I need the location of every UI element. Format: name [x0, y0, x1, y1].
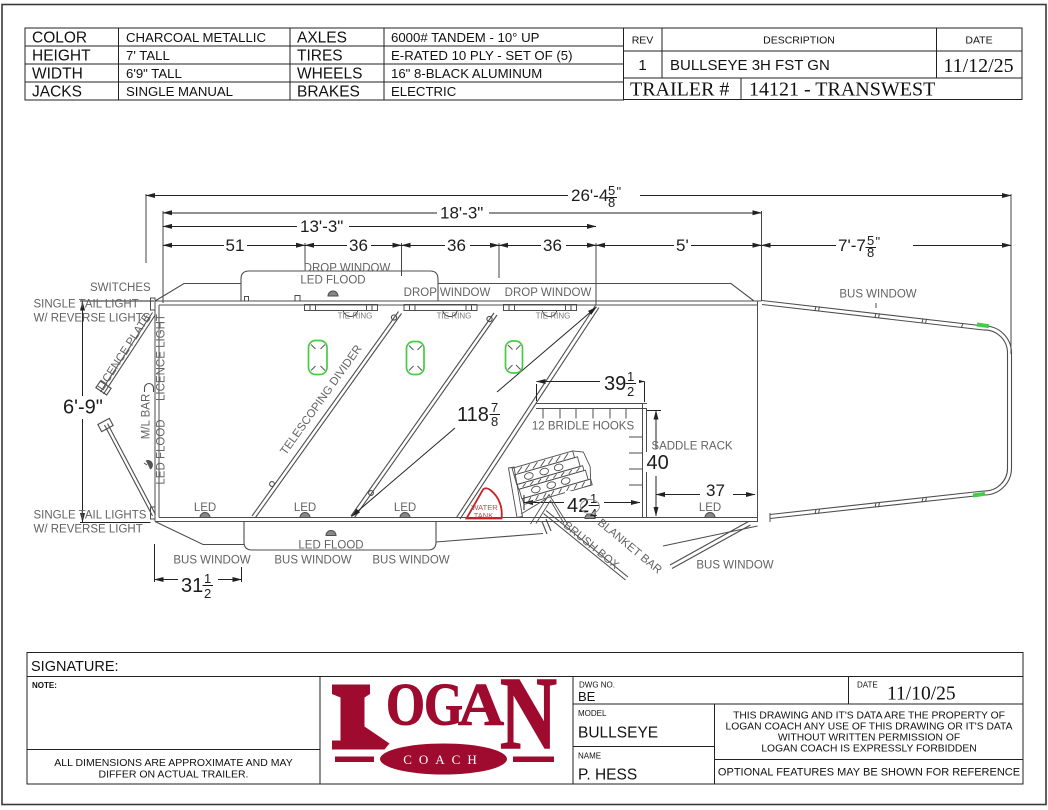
svg-text:HEIGHT: HEIGHT	[32, 48, 91, 65]
svg-text:TIE RING: TIE RING	[536, 312, 571, 321]
svg-text:5': 5'	[676, 236, 689, 255]
svg-text:N: N	[500, 656, 557, 771]
svg-text:NOTE:: NOTE:	[32, 681, 57, 690]
svg-text:": "	[617, 184, 622, 199]
svg-text:BUS WINDOW: BUS WINDOW	[274, 555, 351, 567]
svg-text:31: 31	[181, 575, 203, 597]
svg-text:LED: LED	[194, 502, 216, 514]
svg-text:COACH: COACH	[403, 752, 484, 767]
svg-text:JACKS: JACKS	[32, 84, 82, 101]
svg-text:LED FLOOD: LED FLOOD	[156, 419, 168, 484]
svg-text:36: 36	[349, 236, 368, 255]
svg-text:TIE RING: TIE RING	[437, 312, 472, 321]
svg-text:WITHOUT WRITTEN PERMISSION OF: WITHOUT WRITTEN PERMISSION OF	[778, 733, 960, 744]
svg-text:BULLSEYE 3H FST GN: BULLSEYE 3H FST GN	[670, 57, 830, 74]
svg-text:AXLES: AXLES	[297, 30, 347, 47]
svg-text:DATE: DATE	[857, 681, 878, 690]
svg-text:DROP WINDOW: DROP WINDOW	[304, 263, 391, 275]
svg-text:SWITCHES: SWITCHES	[90, 282, 151, 294]
svg-text:TIE RING: TIE RING	[338, 312, 373, 321]
svg-text:LED FLOOD: LED FLOOD	[298, 540, 363, 552]
svg-text:M/L BAR: M/L BAR	[141, 394, 153, 440]
svg-text:ELECTRIC: ELECTRIC	[391, 84, 457, 99]
svg-text:LED: LED	[294, 502, 316, 514]
svg-text:SINGLE TAIL LIGHTS: SINGLE TAIL LIGHTS	[34, 510, 147, 522]
svg-text:39: 39	[604, 373, 626, 395]
svg-text:2: 2	[204, 586, 211, 601]
svg-text:BRAKES: BRAKES	[297, 84, 360, 101]
svg-text:TANK: TANK	[474, 511, 493, 520]
svg-text:SINGLE MANUAL: SINGLE MANUAL	[126, 84, 233, 99]
svg-text:NAME: NAME	[578, 752, 601, 761]
svg-text:BE: BE	[578, 689, 596, 704]
svg-text:REV: REV	[632, 35, 654, 47]
svg-text:P. HESS: P. HESS	[578, 767, 637, 784]
svg-text:LOGAN COACH IS EXPRESSLY FORBI: LOGAN COACH IS EXPRESSLY FORBIDDEN	[761, 744, 976, 755]
svg-text:SINGLE TAIL LIGHT: SINGLE TAIL LIGHT	[34, 299, 139, 311]
svg-text:BUS WINDOW: BUS WINDOW	[696, 560, 773, 572]
svg-text:LOGAN COACH ANY USE OF THIS DR: LOGAN COACH ANY USE OF THIS DRAWING OR I…	[726, 722, 1013, 733]
svg-text:DROP WINDOW: DROP WINDOW	[505, 287, 592, 299]
svg-text:BULLSEYE: BULLSEYE	[578, 725, 658, 742]
svg-text:TIRES: TIRES	[297, 48, 343, 65]
svg-text:COLOR: COLOR	[32, 30, 87, 47]
svg-text:WIDTH: WIDTH	[32, 66, 83, 83]
svg-text:BLANKET BAR: BLANKET BAR	[595, 517, 664, 577]
svg-text:BUS WINDOW: BUS WINDOW	[372, 555, 449, 567]
svg-text:7'-7: 7'-7	[838, 236, 866, 255]
svg-text:26'-4: 26'-4	[571, 186, 608, 205]
svg-text:LICENCE LIGHT: LICENCE LIGHT	[156, 314, 168, 401]
svg-text:DROP WINDOW: DROP WINDOW	[404, 287, 491, 299]
svg-text:": "	[876, 234, 881, 249]
svg-text:1: 1	[627, 369, 634, 384]
svg-text:LED FLOOD: LED FLOOD	[300, 275, 365, 287]
svg-text:DESCRIPTION: DESCRIPTION	[763, 35, 835, 47]
svg-text:TRAILER #: TRAILER #	[630, 79, 729, 101]
svg-text:40: 40	[647, 452, 669, 474]
svg-text:THIS DRAWING AND IT'S DATA ARE: THIS DRAWING AND IT'S DATA ARE THE PROPE…	[733, 711, 1005, 722]
svg-text:ALL DIMENSIONS ARE APPROXIMATE: ALL DIMENSIONS ARE APPROXIMATE AND MAY	[54, 757, 292, 769]
svg-text:CHARCOAL METALLIC: CHARCOAL METALLIC	[126, 30, 266, 45]
svg-text:118: 118	[457, 404, 489, 426]
svg-text:18'-3": 18'-3"	[440, 204, 483, 223]
svg-text:W/ REVERSE LIGHTS: W/ REVERSE LIGHTS	[34, 313, 151, 325]
svg-text:TELESCOPING DIVIDER: TELESCOPING DIVIDER	[278, 343, 364, 457]
svg-text:OPTIONAL FEATURES MAY BE SHOWN: OPTIONAL FEATURES MAY BE SHOWN FOR REFER…	[718, 767, 1020, 779]
svg-text:1: 1	[590, 491, 597, 506]
svg-text:7' TALL: 7' TALL	[126, 48, 170, 63]
svg-text:W/ REVERSE LIGHT: W/ REVERSE LIGHT	[34, 524, 143, 536]
svg-text:37: 37	[706, 481, 725, 500]
svg-text:BUS WINDOW: BUS WINDOW	[173, 555, 250, 567]
svg-text:13'-3": 13'-3"	[300, 217, 343, 236]
svg-text:O: O	[386, 672, 425, 738]
svg-text:LED: LED	[394, 502, 416, 514]
svg-text:LED: LED	[699, 502, 721, 514]
svg-text:6'-9": 6'-9"	[63, 397, 103, 419]
svg-text:DATE: DATE	[965, 35, 992, 47]
svg-text:16" 8-BLACK ALUMINUM: 16" 8-BLACK ALUMINUM	[391, 66, 542, 81]
svg-text:8: 8	[491, 414, 498, 429]
svg-text:1: 1	[638, 57, 646, 74]
svg-text:51: 51	[226, 236, 245, 255]
svg-text:42: 42	[567, 495, 589, 517]
svg-text:DIFFER ON ACTUAL TRAILER.: DIFFER ON ACTUAL TRAILER.	[99, 769, 249, 781]
svg-text:14121 - TRANSWEST: 14121 - TRANSWEST	[749, 79, 935, 101]
svg-text:E-RATED 10 PLY - SET OF (5): E-RATED 10 PLY - SET OF (5)	[391, 48, 573, 63]
svg-text:12 BRIDLE HOOKS: 12 BRIDLE HOOKS	[532, 421, 635, 433]
svg-text:WHEELS: WHEELS	[297, 66, 362, 83]
svg-text:BUS WINDOW: BUS WINDOW	[839, 289, 916, 301]
svg-text:36: 36	[543, 236, 562, 255]
svg-text:2: 2	[627, 384, 634, 399]
svg-text:SIGNATURE:: SIGNATURE:	[31, 659, 119, 675]
svg-text:36: 36	[447, 236, 466, 255]
svg-text:MODEL: MODEL	[578, 709, 607, 718]
svg-text:1: 1	[204, 571, 211, 586]
svg-text:SADDLE RACK: SADDLE RACK	[651, 441, 732, 453]
svg-text:6000# TANDEM - 10° UP: 6000# TANDEM - 10° UP	[391, 30, 540, 45]
svg-text:A: A	[458, 672, 504, 738]
svg-text:11/12/25: 11/12/25	[943, 55, 1013, 77]
svg-text:7: 7	[491, 400, 498, 415]
svg-text:6'9" TALL: 6'9" TALL	[126, 66, 182, 81]
svg-text:11/10/25: 11/10/25	[887, 684, 956, 705]
